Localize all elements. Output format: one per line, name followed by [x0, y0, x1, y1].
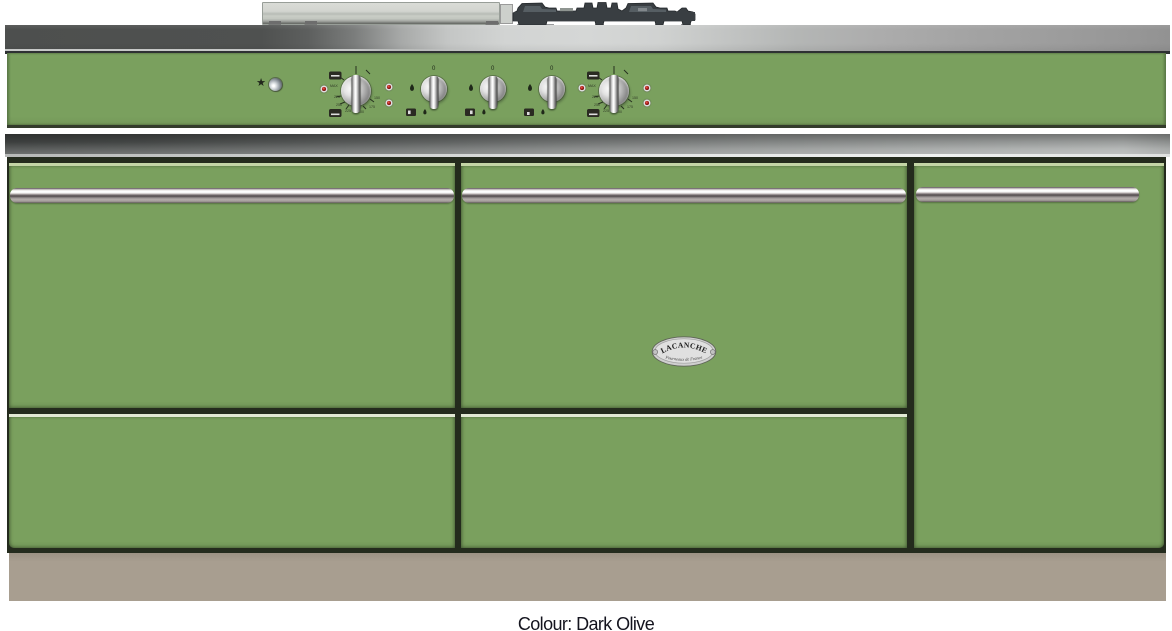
svg-text:250: 250: [336, 103, 342, 107]
svg-text:MAX: MAX: [588, 84, 596, 88]
svg-text:225: 225: [345, 109, 351, 113]
svg-text:150: 150: [632, 96, 638, 100]
svg-text:150: 150: [374, 96, 380, 100]
svg-text:0: 0: [491, 66, 495, 72]
svg-text:175: 175: [627, 105, 633, 109]
svg-text:225: 225: [603, 109, 609, 113]
svg-text:MAX: MAX: [330, 84, 338, 88]
svg-text:0: 0: [550, 66, 554, 72]
svg-text:175: 175: [369, 105, 375, 109]
svg-text:250: 250: [594, 103, 600, 107]
svg-text:275: 275: [334, 95, 340, 99]
svg-text:Colour: Dark Olive: Colour: Dark Olive: [518, 614, 655, 631]
svg-text:0: 0: [432, 66, 436, 72]
svg-text:275: 275: [592, 95, 598, 99]
